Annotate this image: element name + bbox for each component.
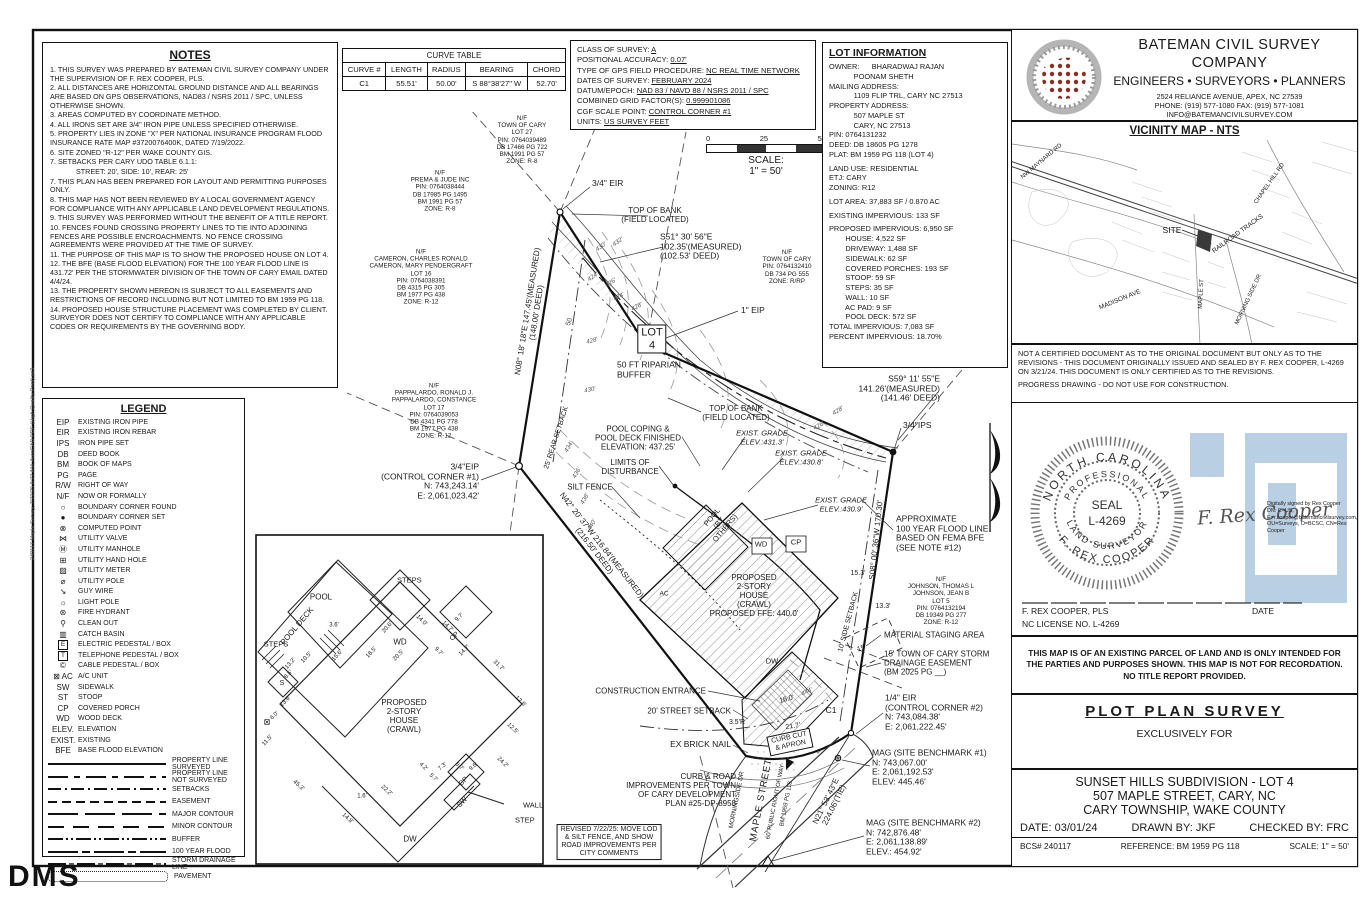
- lot-info-line: WALL: 10 SF: [829, 293, 1001, 303]
- legend-item: ⊛FIRE HYDRANT: [48, 608, 239, 619]
- note-item: 4. ALL IRONS SET ARE 3/4" IRON PIPE UNLE…: [50, 121, 330, 130]
- note-item: 10. FENCES FOUND CROSSING PROPERTY LINES…: [50, 224, 330, 250]
- legend-line-style: 100 YEAR FLOOD: [48, 846, 239, 859]
- curve-cell: S 88°38'27" W: [466, 77, 528, 91]
- lot-info-line: PROPOSED IMPERVIOUS: 6,950 SF: [829, 224, 1001, 234]
- legend-item: WDWOOD DECK: [48, 714, 239, 725]
- lot-info-line: PROPERTY ADDRESS:: [829, 101, 1001, 111]
- legend-item: ●BOUNDARY CORNER SET: [48, 512, 239, 523]
- lot-info-line: PIN: 0764131232: [829, 130, 1001, 140]
- lot-info-line: STEPS: 35 SF: [829, 283, 1001, 293]
- certification-note: NOT A CERTIFIED DOCUMENT AS TO THE ORIGI…: [1012, 345, 1357, 403]
- notes-list: 1. THIS SURVEY WAS PREPARED BY BATEMAN C…: [50, 66, 330, 332]
- legend-item: ELEV.ELEVATION: [48, 724, 239, 735]
- map-label: SITE: [1163, 226, 1182, 236]
- curve-col-header: RADIUS: [427, 63, 466, 77]
- surveyor-name: F. REX COOPER, PLS: [1022, 606, 1108, 616]
- legend-item: ⚲CLEAN OUT: [48, 618, 239, 629]
- legend-item: ⊗COMPUTED POINT: [48, 523, 239, 534]
- lot-info-line: SIDEWALK: 62 SF: [829, 254, 1001, 264]
- note-item: 8. THIS MAP HAS NOT BEEN REVIEWED BY A L…: [50, 196, 330, 213]
- map-label: CHAPEL HILL RD: [1253, 162, 1286, 205]
- lot-info-line: PERCENT IMPERVIOUS: 18.70%: [829, 332, 1001, 342]
- legend-title: LEGEND: [48, 403, 239, 415]
- legend-item: N/FNOW OR FORMALLY: [48, 491, 239, 502]
- lot-info-line: CARY, NC 27513: [829, 121, 1001, 131]
- legend-item: ▥CATCH BASIN: [48, 629, 239, 640]
- legend-item: ☼LIGHT POLE: [48, 597, 239, 608]
- tb-scale: SCALE: 1" = 50': [1289, 841, 1349, 851]
- note-item: 5. PROPERTY LIES IN ZONE "X" PER NATIONA…: [50, 130, 330, 147]
- apron-plan: [748, 740, 800, 776]
- curve-col-header: CURVE #: [343, 63, 386, 77]
- legend-item: TTELEPHONE PEDESTAL / BOX: [48, 650, 239, 661]
- note-item: 2. ALL DISTANCES ARE HORIZONTAL GROUND D…: [50, 84, 330, 110]
- lot-info-line: AC PAD: 9 SF: [829, 303, 1001, 313]
- svg-text:PROFESSIONAL: PROFESSIONAL: [1062, 469, 1152, 502]
- lot-info-line: COVERED PORCHES: 193 SF: [829, 264, 1001, 274]
- legend-box: LEGEND EIPEXISTING IRON PIPEEIREXISTING …: [42, 398, 245, 857]
- legend-item: EXIST.EXISTING: [48, 735, 239, 746]
- legend-item: ○BOUNDARY CORNER FOUND: [48, 502, 239, 513]
- legend-line-style: MINOR CONTOUR: [48, 821, 239, 834]
- legend-item: CPCOVERED PORCH: [48, 703, 239, 714]
- legend-item: ⊞UTILITY HAND HOLE: [48, 555, 239, 566]
- note-item: 12. THE BFE (BASE FLOOD ELEVATION) FOR T…: [50, 260, 330, 286]
- certification-text: NOT A CERTIFIED DOCUMENT AS TO THE ORIGI…: [1018, 349, 1351, 376]
- map-label: MORNING SIDE DR: [1234, 274, 1263, 327]
- legend-line-style: SETBACKS: [48, 783, 239, 796]
- lot-info-line: LOT AREA: 37,883 SF / 0.870 AC: [829, 197, 1001, 207]
- legend-line-style: PROPERTY LINE NOT SURVEYED: [48, 771, 239, 784]
- curve-col-header: BEARING: [466, 63, 528, 77]
- legend-abbr-list: EIPEXISTING IRON PIPEEIREXISTING IRON RE…: [48, 417, 239, 756]
- scan-watermark: DMS: [8, 860, 81, 894]
- disclaimer-box: THIS MAP IS OF AN EXISTING PARCEL OF LAN…: [1012, 637, 1357, 695]
- map-label: NW MAYNARD RD: [1020, 143, 1064, 181]
- company-phone: PHONE: (919) 577-1080 FAX: (919) 577-108…: [1107, 101, 1352, 110]
- legend-item: STSTOOP: [48, 692, 239, 703]
- map-label: RAILROAD TRACKS: [1211, 213, 1265, 255]
- curve-cell: 50.00': [427, 77, 466, 91]
- seal-section: NORTH CAROLINA PROFESSIONAL LAND SURVEYO…: [1012, 403, 1357, 637]
- survey-info-line: CLASS OF SURVEY: A: [577, 45, 809, 55]
- curve-table-box: CURVE TABLE CURVE # LENGTH RADIUS BEARIN…: [342, 48, 566, 112]
- progress-drawing-text: PROGRESS DRAWING - DO NOT USE FOR CONSTR…: [1018, 380, 1351, 389]
- notes-title: NOTES: [50, 48, 330, 62]
- plot-file-edge-text: 240117 Maple Survey, 7/22/25 8:27 AM, Au…: [30, 368, 36, 560]
- curve-cell: 55.51': [386, 77, 427, 91]
- survey-info-box: CLASS OF SURVEY: APOSITIONAL ACCURACY: 0…: [570, 40, 816, 130]
- lot-info-line: ZONING: R12: [829, 183, 1001, 193]
- note-item: 9. THIS SURVEY WAS PERFORMED WITHOUT THE…: [50, 214, 330, 223]
- note-item: 13. THE PROPERTY SHOWN HEREON IS SUBJECT…: [50, 287, 330, 304]
- disclaimer-text: THIS MAP IS OF AN EXISTING PARCEL OF LAN…: [1012, 648, 1357, 683]
- lot-info-line: EXISTING IMPERVIOUS: 133 SF: [829, 211, 1001, 221]
- scale-tick: 0: [706, 134, 710, 143]
- legend-item: ⊠ ACA/C UNIT: [48, 671, 239, 682]
- curve-table: CURVE TABLE CURVE # LENGTH RADIUS BEARIN…: [342, 48, 566, 91]
- legend-line-style: EASEMENT: [48, 796, 239, 809]
- company-tagline: ENGINEERS • SURVEYORS • PLANNERS: [1107, 74, 1352, 89]
- company-logo-icon: [1024, 38, 1104, 116]
- seal-arc-2: PROFESSIONAL: [1062, 469, 1152, 502]
- plot-plan-survey-sheet: N/F TOWN OF CARY LOT 27 PIN: 0764039489 …: [0, 0, 1365, 907]
- lot-info-line: POOL DECK: 572 SF: [829, 312, 1001, 322]
- project-name: SUNSET HILLS SUBDIVISION - LOT 4: [1012, 775, 1357, 789]
- note-item: 14. PROPOSED HOUSE STRUCTURE PLACEMENT W…: [50, 306, 330, 332]
- survey-info-lines: CLASS OF SURVEY: APOSITIONAL ACCURACY: 0…: [577, 45, 809, 127]
- legend-item: EELECTRIC PEDESTAL / BOX: [48, 639, 239, 650]
- lot-info-line: ETJ: CARY: [829, 173, 1001, 183]
- map-label: MADISON AVE: [1098, 288, 1142, 311]
- note-item: 6. SITE ZONED "R-12" PER WAKE COUNTY GIS…: [50, 149, 330, 158]
- legend-item: ©CABLE PEDESTAL / BOX: [48, 661, 239, 672]
- legend-line-style: BUFFER: [48, 833, 239, 846]
- lot-info-line: PLAT: BM 1959 PG 118 (LOT 4): [829, 150, 1001, 160]
- tb-bcs-number: BCS# 240117: [1020, 841, 1071, 851]
- note-item: 7. SETBACKS PER CARY UDO TABLE 6.1.1:: [50, 158, 330, 167]
- lot-info-title: LOT INFORMATION: [829, 47, 1001, 59]
- vicinity-map: VICINITY MAP - NTS NW MAYNARD RDCHAPEL H…: [1012, 122, 1357, 345]
- company-name: BATEMAN CIVIL SURVEY COMPANY: [1107, 36, 1352, 72]
- sheet-subtitle: EXCLUSIVELY FOR: [1012, 728, 1357, 740]
- note-item: STREET: 20', SIDE: 10', REAR: 25': [50, 168, 330, 177]
- legend-item: R/WRIGHT OF WAY: [48, 481, 239, 492]
- survey-info-line: UNITS: US SURVEY FEET: [577, 117, 809, 127]
- scale-bar: 0 25 50 SCALE: 1" = 50': [706, 134, 826, 177]
- notes-box: NOTES 1. THIS SURVEY WAS PREPARED BY BAT…: [42, 42, 338, 388]
- legend-item: ▨UTILITY METER: [48, 565, 239, 576]
- lot-info-line: STOOP: 59 SF: [829, 273, 1001, 283]
- curve-cell: C1: [343, 77, 386, 91]
- scale-label: SCALE:: [706, 155, 826, 166]
- storm-easement-lines: [824, 640, 910, 688]
- map-label: MAPLE ST: [1198, 279, 1206, 309]
- note-item: 3. AREAS COMPUTED BY COORDINATE METHOD.: [50, 111, 330, 120]
- digital-signature-text: Digitally signed by Rex Cooper DN: C=US,…: [1267, 501, 1355, 535]
- curve-cell: 52.70': [528, 77, 566, 91]
- surveyor-license: NC LICENSE NO. L-4269: [1022, 619, 1119, 629]
- curve-col-header: CHORD: [528, 63, 566, 77]
- legend-item: SWSIDEWALK: [48, 682, 239, 693]
- seal-center-1: SEAL: [1092, 498, 1123, 512]
- legend-line-style: PROPERTY LINE SURVEYED: [48, 758, 239, 771]
- right-panel: BATEMAN CIVIL SURVEY COMPANY ENGINEERS •…: [1012, 30, 1357, 866]
- sheet-title: PLOT PLAN SURVEY: [1012, 703, 1357, 720]
- legend-item: BFEBASE FLOOD ELEVATION: [48, 745, 239, 756]
- lot-info-line: DRIVEWAY: 1,488 SF: [829, 244, 1001, 254]
- house-detail-inset: [256, 535, 543, 864]
- legend-item: ↘GUY WIRE: [48, 587, 239, 598]
- legend-item: PGPAGE: [48, 470, 239, 481]
- lot-info-line: MAILING ADDRESS:: [829, 82, 1001, 92]
- curve-col-header: LENGTH: [386, 63, 427, 77]
- lot-info-box: LOT INFORMATION OWNER: BHARADWAJ RAJAN P…: [822, 42, 1008, 368]
- lot-info-lines: OWNER: BHARADWAJ RAJAN POONAM SHETHMAILI…: [829, 62, 1001, 342]
- lot-info-line: HOUSE: 4,522 SF: [829, 234, 1001, 244]
- survey-info-line: COMBINED GRID FACTOR(S): 0.999901086: [577, 96, 809, 106]
- curve-table-title: CURVE TABLE: [343, 49, 566, 63]
- note-item: 7. THIS PLAN HAS BEEN PREPARED FOR LAYOU…: [50, 178, 330, 195]
- lot-info-line: OWNER: BHARADWAJ RAJAN: [829, 62, 1001, 72]
- seal-center-2: L-4269: [1088, 514, 1126, 528]
- legend-item: EIREXISTING IRON REBAR: [48, 428, 239, 439]
- tb-checked-by: CHECKED BY: FRC: [1249, 822, 1349, 834]
- lot-info-line: POONAM SHETH: [829, 72, 1001, 82]
- tb-drawn-by: DRAWN BY: JKF: [1131, 822, 1215, 834]
- company-email: INFO@BATEMANCIVILSURVEY.COM: [1107, 110, 1352, 119]
- project-address: 507 MAPLE STREET, CARY, NC: [1012, 789, 1357, 803]
- legend-item: ⌀UTILITY POLE: [48, 576, 239, 587]
- date-label: DATE: [1252, 606, 1274, 616]
- north-arrow-icon: [990, 423, 1000, 532]
- survey-info-line: DATUM/EPOCH: NAD 83 / NAVD 88 / NSRS 201…: [577, 86, 809, 96]
- vicinity-title: VICINITY MAP - NTS: [1012, 125, 1357, 137]
- survey-info-line: TYPE OF GPS FIELD PROCEDURE: NC REAL TIM…: [577, 66, 809, 76]
- legend-item: ⋈UTILITY VALVE: [48, 534, 239, 545]
- vicinity-labels: NW MAYNARD RDCHAPEL HILL RDRAILROAD TRAC…: [1012, 122, 1357, 345]
- tb-reference: REFERENCE: BM 1959 PG 118: [1121, 841, 1240, 851]
- lot-info-line: DEED: DB 18605 PG 1278: [829, 140, 1001, 150]
- survey-info-line: POSITIONAL ACCURACY: 0.07': [577, 55, 809, 65]
- material-staging-plan: [845, 618, 902, 668]
- legend-item: BMBOOK OF MAPS: [48, 459, 239, 470]
- lot-info-line: 1109 FLIP TRL, CARY NC 27513: [829, 91, 1001, 101]
- legend-item: DBDEED BOOK: [48, 449, 239, 460]
- legend-line-style: MAJOR CONTOUR: [48, 808, 239, 821]
- lot-info-line: TOTAL IMPERVIOUS: 7,083 SF: [829, 322, 1001, 332]
- scale-value: 1" = 50': [706, 166, 826, 177]
- note-item: 1. THIS SURVEY WAS PREPARED BY BATEMAN C…: [50, 66, 330, 83]
- legend-item: IPSIRON PIPE SET: [48, 438, 239, 449]
- lot-info-line: LAND USE: RESIDENTIAL: [829, 164, 1001, 174]
- project-county: CARY TOWNSHIP, WAKE COUNTY: [1012, 803, 1357, 817]
- survey-info-line: DATES OF SURVEY: FEBRUARY 2024: [577, 76, 809, 86]
- legend-item: ⓂUTILITY MANHOLE: [48, 544, 239, 555]
- tb-date: DATE: 03/01/24: [1020, 822, 1097, 834]
- title-block: PLOT PLAN SURVEY EXCLUSIVELY FOR SUNSET …: [1012, 695, 1357, 866]
- company-address: 2524 RELIANCE AVENUE, APEX, NC 27539: [1107, 92, 1352, 101]
- note-item: 11. THE PURPOSE OF THIS MAP IS TO SHOW T…: [50, 251, 330, 260]
- scale-tick: 25: [760, 134, 768, 143]
- survey-info-line: CGF SCALE POINT: CONTROL CORNER #1: [577, 107, 809, 117]
- lot-info-line: 507 MAPLE ST: [829, 111, 1001, 121]
- legend-item: EIPEXISTING IRON PIPE: [48, 417, 239, 428]
- company-header: BATEMAN CIVIL SURVEY COMPANY ENGINEERS •…: [1012, 30, 1357, 122]
